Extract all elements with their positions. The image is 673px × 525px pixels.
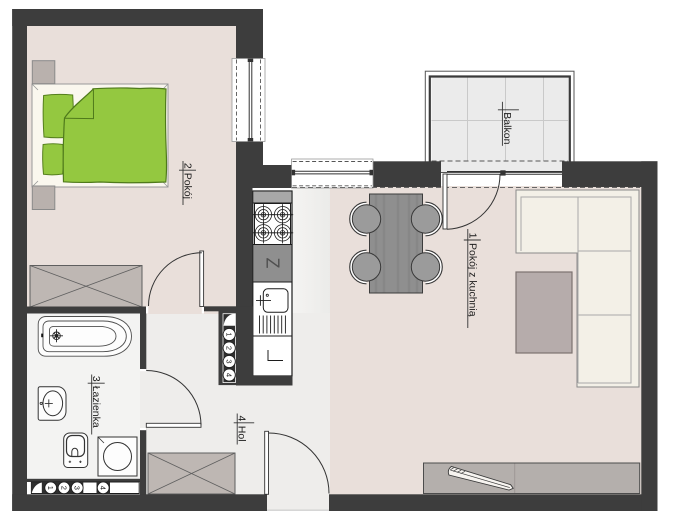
svg-text:Łazienka: Łazienka <box>90 386 102 428</box>
svg-text:Pokój z kuchnią: Pokój z kuchnią <box>466 243 478 317</box>
svg-text:1: 1 <box>225 332 234 336</box>
svg-text:4: 4 <box>225 373 234 377</box>
svg-text:2: 2 <box>182 163 194 169</box>
svg-text:3: 3 <box>73 486 82 490</box>
svg-text:2: 2 <box>225 346 234 350</box>
svg-text:Z: Z <box>263 258 283 269</box>
svg-text:3: 3 <box>90 376 102 382</box>
svg-text:2: 2 <box>59 486 68 490</box>
svg-text:1: 1 <box>46 486 55 490</box>
svg-text:Balkon: Balkon <box>501 112 513 144</box>
svg-text:1: 1 <box>466 233 478 239</box>
svg-text:Pokój: Pokój <box>182 173 194 199</box>
svg-text:Hol: Hol <box>236 426 248 442</box>
svg-text:4: 4 <box>99 486 108 490</box>
svg-text:4: 4 <box>236 415 248 421</box>
svg-text:3: 3 <box>225 359 234 363</box>
